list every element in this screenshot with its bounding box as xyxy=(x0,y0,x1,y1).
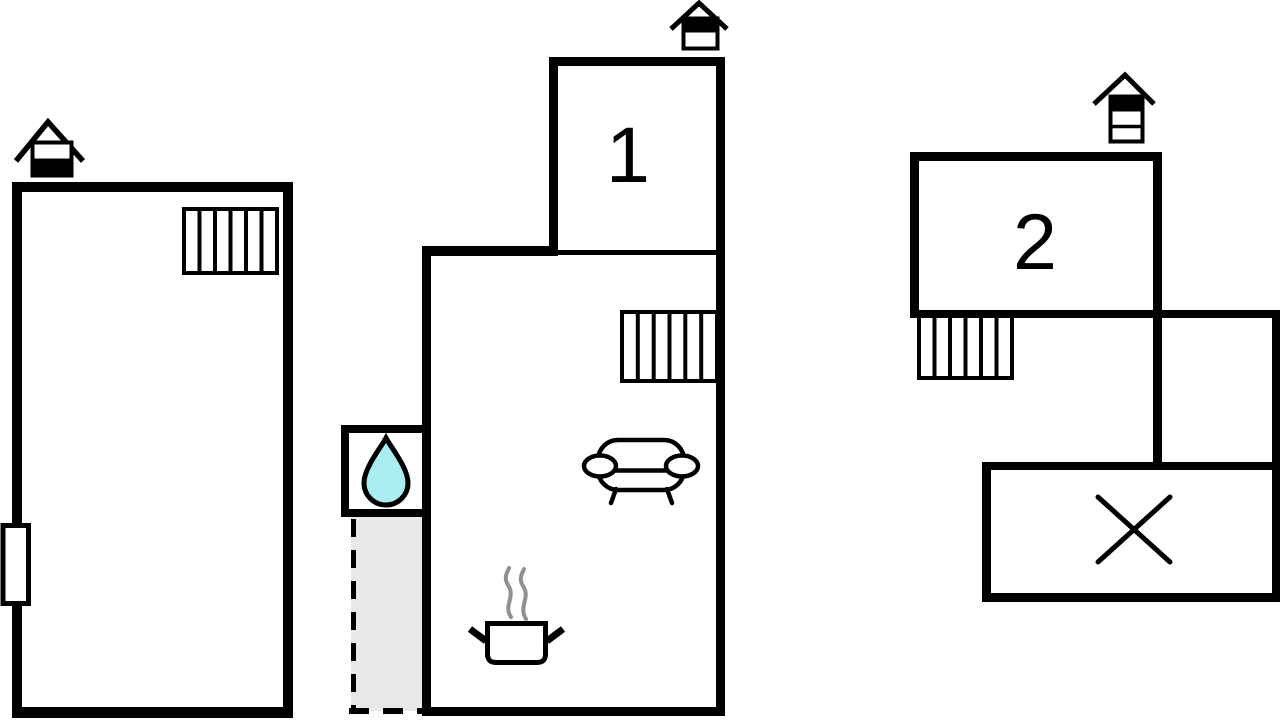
cooking-pot-icon xyxy=(470,624,563,663)
floor-plan: 1 xyxy=(0,0,1280,720)
radiator-icon xyxy=(919,316,1012,378)
chimney-icon xyxy=(671,3,727,49)
steam-icon xyxy=(506,568,526,619)
wc-box xyxy=(341,425,431,517)
building-left xyxy=(3,122,293,718)
sofa-icon xyxy=(584,440,698,503)
water-drop-icon xyxy=(364,438,408,505)
cross-mark xyxy=(1098,497,1170,562)
building-right: 2 xyxy=(910,75,1280,602)
radiator-icon xyxy=(622,312,717,381)
floor-plan-canvas: 1 xyxy=(0,0,1280,720)
dashed-annex-area xyxy=(349,517,424,711)
building-main: 1 xyxy=(341,3,727,716)
chimney-icon xyxy=(1094,75,1154,142)
room-1-label: 1 xyxy=(606,110,650,199)
radiator-icon xyxy=(184,209,277,273)
walls xyxy=(422,57,725,716)
chimney-icon xyxy=(16,122,83,177)
room-2-label: 2 xyxy=(1013,197,1057,286)
window-marker xyxy=(3,526,29,604)
